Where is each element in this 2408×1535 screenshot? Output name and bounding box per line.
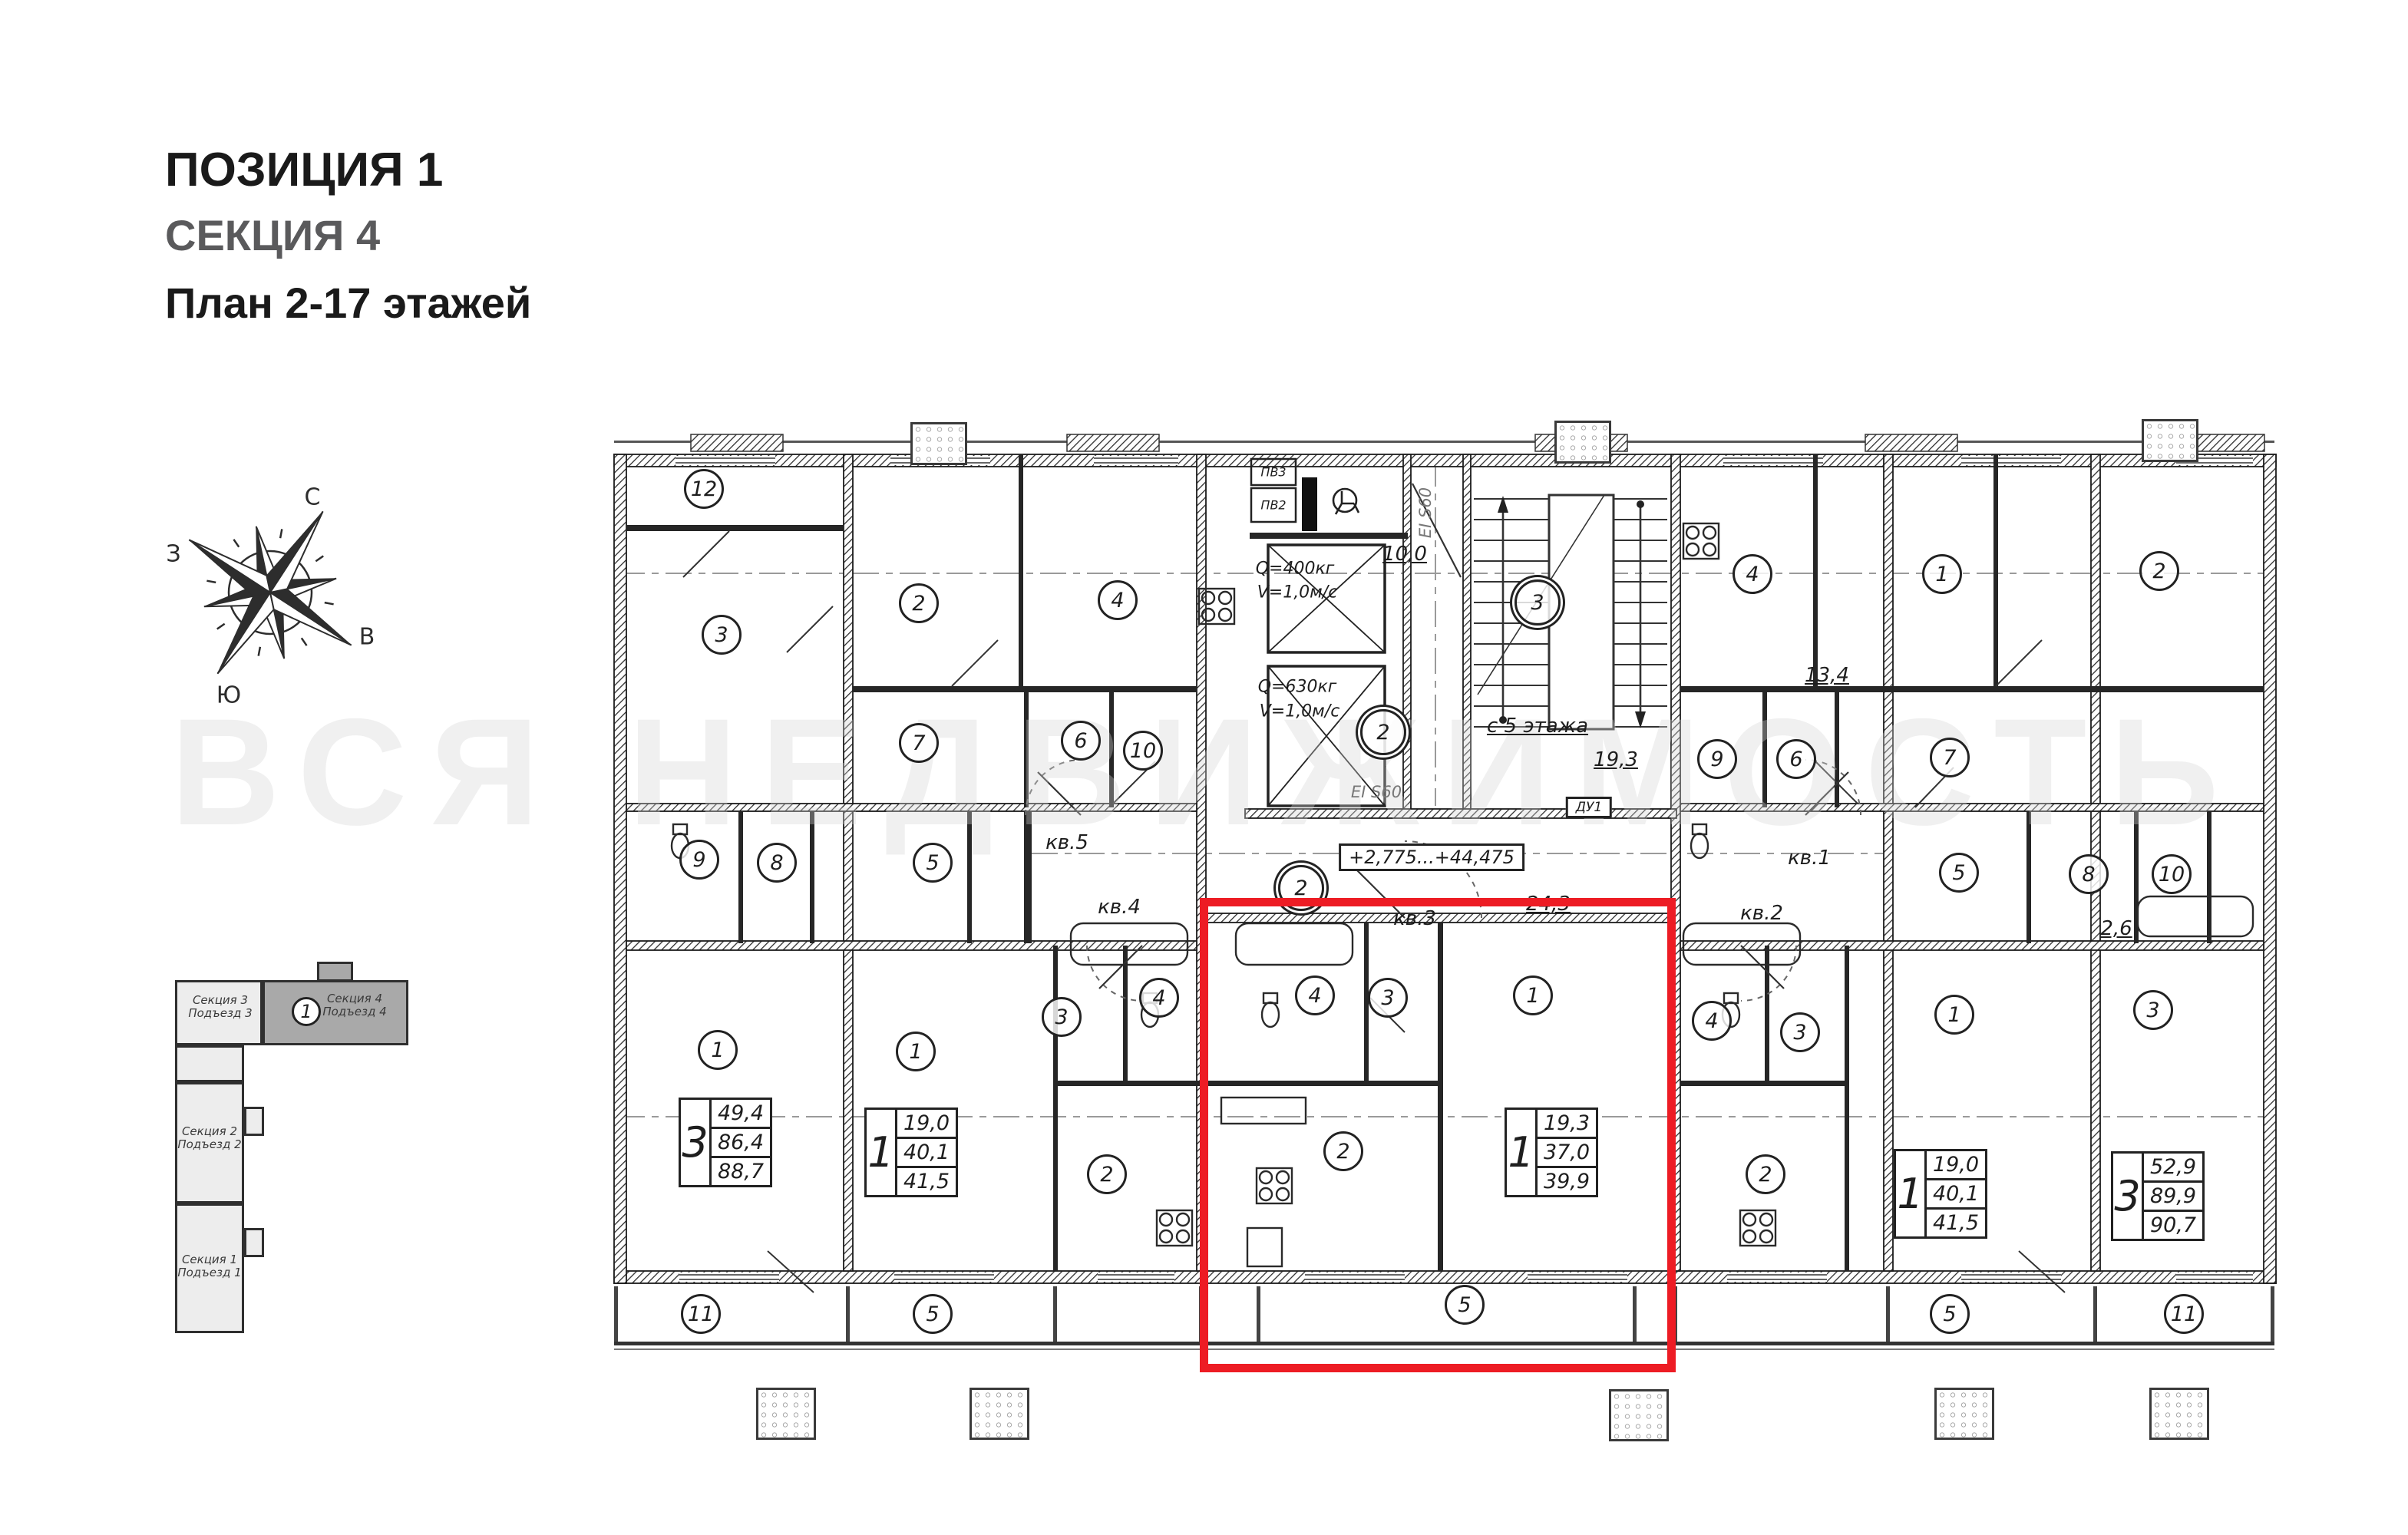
room-number-circle: 2 [1746,1154,1785,1194]
room-number-circle: 10 [2152,854,2192,894]
plan-label: с 5 этажа [1487,715,1588,738]
rooms-count: 3 [681,1100,712,1185]
ventilation-block [910,422,967,465]
room-number-circle: 11 [2164,1294,2204,1334]
room-number-circle: 7 [1930,738,1970,777]
plan-label: EI S60 [1416,487,1435,538]
room-number-circle: 5 [1939,853,1979,893]
room-number-circle: 5 [1930,1294,1970,1334]
ventilation-block [756,1388,816,1440]
ventilation-block [2142,419,2198,462]
plan-label: ПВ2 [1260,498,1286,513]
rooms-count: 1 [1896,1151,1927,1236]
floorplan-page: ПОЗИЦИЯ 1 СЕКЦИЯ 4 План 2-17 этажей [0,0,2408,1535]
plan-label: EI S60 [1351,783,1402,801]
room-number-circle: 12 [684,469,724,509]
room-number-circle: 1 [896,1032,936,1071]
room-number-circle: 11 [681,1294,721,1334]
plan-label: ДУ1 [1566,797,1612,818]
room-number-circle: 2 [2139,551,2179,591]
room-number-circle: 4 [1692,1001,1732,1041]
area-value: 89,9 [2144,1183,2202,1212]
plan-label: кв.5 [1045,831,1088,854]
room-number-circle: 5 [913,1294,953,1334]
room-number-circle: 10 [1123,731,1163,771]
area-value: 52,9 [2144,1154,2202,1183]
area-value: 88,7 [712,1158,770,1185]
plan-label: +2,775...+44,475 [1339,843,1524,871]
apartment-area-table: 352,989,990,7 [2111,1151,2205,1241]
apartment-area-table: 119,040,141,5 [1894,1149,1987,1239]
ventilation-block [2149,1388,2209,1440]
plan-label: Q=400кг [1256,560,1335,579]
room-number-circle: 9 [1697,739,1737,779]
room-number-circle: 3 [702,615,742,655]
room-number-circle: 4 [1139,978,1179,1018]
area-value: 41,5 [897,1168,956,1195]
area-value: 40,1 [1927,1180,1985,1210]
plan-label: V=1,0м/с [1260,702,1340,721]
room-number-circle: 3 [2133,990,2173,1030]
area-value: 41,5 [1927,1210,1985,1236]
room-number-circle: 3 [1042,997,1082,1037]
plan-label: кв.4 [1098,896,1141,919]
plan-label: V=1,0м/с [1257,583,1338,602]
room-number-circle: 5 [913,843,953,883]
room-number-circle: 1 [698,1030,738,1070]
area-value: 19,0 [1927,1151,1985,1180]
room-number-circle: 6 [1776,739,1816,779]
room-number-circle: 4 [1098,580,1138,620]
plan-label: 19,3 [1594,748,1638,771]
ventilation-block [1934,1388,1994,1440]
area-value: 86,4 [712,1129,770,1158]
plan-label: 2,6 [2100,917,2132,940]
room-number-circle: 1 [1934,995,1974,1035]
plan-label: кв.1 [1788,847,1831,870]
apartment-area-table: 119,040,141,5 [864,1108,958,1197]
room-number-circle: 8 [757,843,797,883]
plan-label: 10,0 [1382,543,1427,566]
apartment-area-table: 349,486,488,7 [679,1098,772,1187]
room-number-circle: 9 [679,840,719,880]
plan-label: Q=630кг [1258,678,1337,697]
room-number-circle: 2 [1360,709,1406,755]
area-value: 90,7 [2144,1212,2202,1239]
room-number-circle: 3 [1780,1012,1820,1052]
ventilation-block [969,1388,1029,1440]
rooms-count: 3 [2113,1154,2144,1239]
room-number-circle: 2 [899,583,939,623]
plan-label: 13,4 [1805,664,1849,687]
room-number-circle: 1 [1922,554,1962,594]
room-number-circle: 8 [2069,854,2109,894]
plan-label: ПВ3 [1260,465,1286,480]
room-number-circle: 6 [1061,721,1101,761]
area-value: 40,1 [897,1139,956,1168]
area-value: 19,0 [897,1110,956,1139]
highlighted-apartment-box [1200,898,1676,1372]
room-number-circle: 4 [1733,554,1772,594]
ventilation-block [1554,421,1611,464]
room-number-circle: 3 [1514,579,1561,626]
rooms-count: 1 [867,1110,897,1195]
area-value: 49,4 [712,1100,770,1129]
room-number-circle: 2 [1087,1154,1127,1194]
ventilation-block [1609,1389,1669,1441]
room-number-circle: 7 [899,723,939,763]
plan-label: кв.2 [1740,902,1783,925]
